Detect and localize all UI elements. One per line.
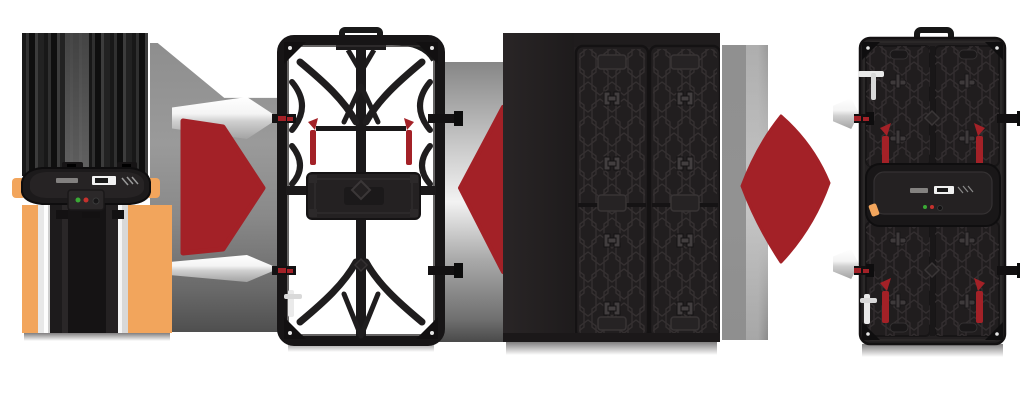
power-button [93, 198, 99, 204]
step-arrow-3 [737, 110, 835, 268]
assembly-process-banner [0, 0, 1020, 400]
front-io-panel [68, 190, 104, 210]
status-led-red [84, 198, 89, 203]
assembled-panel-back [854, 26, 1020, 360]
status-display [92, 176, 116, 185]
brand-print-smudge [910, 188, 928, 193]
led-module-column [650, 46, 720, 338]
mounted-power-box [866, 164, 1000, 226]
led-module-column [576, 46, 648, 338]
led-module-pair [503, 33, 720, 345]
device-feet [56, 210, 124, 219]
block-bottom-cap [503, 333, 720, 342]
block-shadow-band [503, 33, 574, 342]
device-motion-smear-top [22, 33, 148, 176]
latch-crossbar [316, 126, 406, 131]
panel-frame-back [272, 26, 476, 356]
controller-power-box [12, 156, 160, 226]
red-arrow-icon [183, 121, 263, 253]
power-button [938, 206, 943, 211]
status-led-green [76, 198, 81, 203]
status-led-green [923, 205, 927, 209]
red-rounded-diamond-icon [742, 116, 829, 262]
status-led-red [930, 205, 934, 209]
device-smear-highlight [65, 33, 89, 176]
step-arrow-1 [178, 112, 270, 262]
device-drop-shadow [24, 333, 170, 341]
brand-print-smudge [56, 178, 78, 183]
